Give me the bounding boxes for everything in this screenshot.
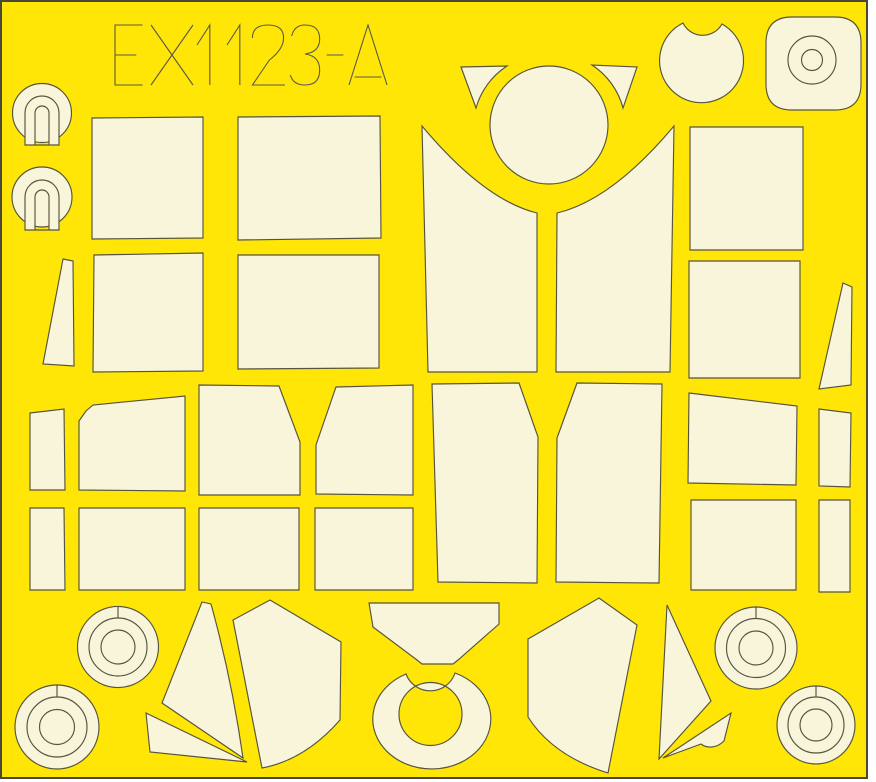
- side-rect-mask-right-1: [690, 127, 803, 250]
- lower-rect-mask-3: [199, 508, 299, 590]
- gunsight-mask-bottom-disc: [12, 167, 72, 227]
- canopy-side-mask-1: [30, 409, 65, 490]
- canopy-side-mask-2: [79, 396, 185, 491]
- side-rect-mask-right-2: [689, 261, 800, 378]
- wheel-mask-3-disc: [715, 607, 797, 689]
- strip-mask-right-upper: [819, 409, 851, 487]
- fuselage-rect-mask-a1: [92, 117, 203, 239]
- fuselage-rect-mask-b2: [238, 255, 379, 369]
- lower-rect-mask-2: [79, 508, 185, 590]
- lower-rect-mask-1: [30, 508, 65, 590]
- rect-mask-right-lower: [691, 500, 796, 590]
- mask-sheet-canvas: [0, 0, 876, 782]
- canopy-crown-circle-mask: [490, 66, 608, 184]
- lower-rect-mask-4: [315, 508, 413, 590]
- fuselage-rect-mask-a2: [238, 116, 381, 240]
- fuselage-rect-mask-b1: [93, 253, 203, 372]
- wheel-mask-4-disc: [777, 686, 855, 764]
- rounded-square-mask: [766, 17, 861, 110]
- wheel-mask-2-disc: [15, 685, 99, 769]
- gunsight-mask-top-disc: [12, 83, 71, 142]
- trapezoid-mask-right: [688, 393, 797, 485]
- strip-mask-right-lower: [819, 500, 850, 592]
- canopy-side-mask-3: [199, 385, 300, 495]
- canopy-center-panel-right: [556, 383, 662, 583]
- wheel-mask-1-disc: [77, 606, 158, 687]
- canopy-center-panel-left: [432, 383, 538, 583]
- notched-disc-mask: [660, 23, 744, 103]
- mask-sheet-photo: EX1123-A: [0, 0, 876, 782]
- canopy-side-mask-4: [316, 385, 413, 495]
